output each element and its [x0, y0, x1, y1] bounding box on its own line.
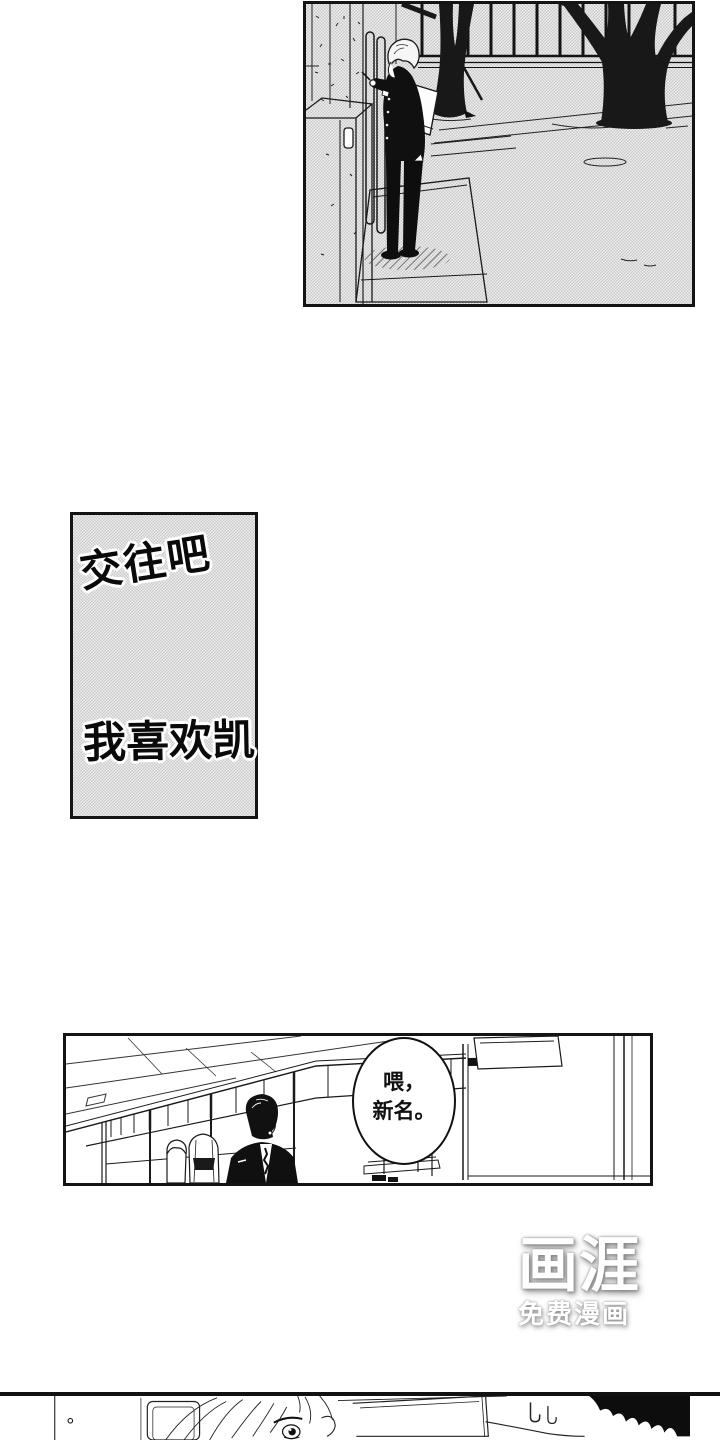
door-frame	[463, 1036, 650, 1180]
panel-confession-text: 交往吧 我喜欢凯	[70, 512, 258, 819]
speech-bubble-line-2: 新名。	[373, 1097, 436, 1126]
eye	[274, 1418, 302, 1439]
watermark-logo: 画涯	[518, 1234, 668, 1298]
closeup-art	[0, 1396, 720, 1440]
shoulder-line	[486, 1422, 585, 1437]
wall-hooks	[531, 1402, 557, 1423]
ceiling-grid	[66, 1036, 396, 1114]
confession-line-1: 交往吧	[75, 519, 215, 600]
confession-line-2: 我喜欢凯	[82, 706, 255, 771]
outdoor-scene-art	[306, 4, 692, 304]
manga-page: 交往吧 我喜欢凯	[0, 0, 720, 1440]
ear-line	[322, 1416, 336, 1436]
door-lines	[55, 1396, 200, 1440]
watermark: 画涯 免费漫画	[518, 1234, 668, 1330]
ceiling-light	[86, 1094, 106, 1106]
boy-student	[226, 1094, 298, 1183]
watermark-tagline: 免费漫画	[518, 1300, 668, 1330]
panel-hallway-scene: 喂， 新名。	[63, 1033, 653, 1186]
panel-outdoor-scene	[303, 1, 695, 307]
locker-box	[306, 98, 372, 302]
girl-students	[167, 1134, 219, 1183]
tree-right	[558, 4, 692, 129]
hair-strands	[166, 1396, 333, 1440]
speech-bubble: 喂， 新名。	[352, 1037, 456, 1165]
entrance-step	[356, 110, 516, 302]
speech-bubble-line-1: 喂，	[383, 1068, 425, 1097]
panel-face-closeup	[0, 1392, 720, 1440]
black-hair	[589, 1396, 690, 1436]
window-board	[338, 1396, 507, 1436]
